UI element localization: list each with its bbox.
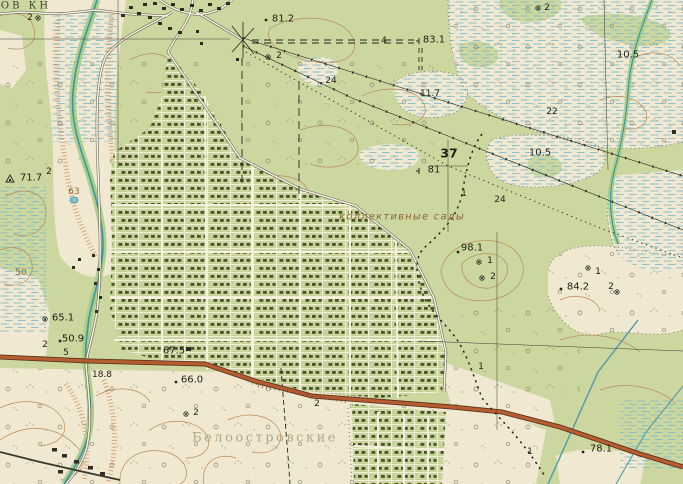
pond: [70, 197, 78, 203]
feature-number: 2: [276, 51, 282, 61]
winter-road-number: 4: [381, 36, 387, 46]
spot-height-84-2: 84.2: [567, 282, 589, 293]
spot-height-66-0: 66.0: [181, 375, 203, 386]
benchmark-83-1: 83.1: [423, 35, 445, 46]
feature-number: 1: [461, 189, 467, 199]
feature-number: 2: [46, 167, 52, 177]
feature-number: 1: [527, 447, 533, 457]
spot-height-78-1: 78.1: [590, 444, 612, 455]
line-label-22: 22: [546, 107, 557, 117]
line-label-24: 24: [325, 76, 336, 86]
topographic-map: ОВ КН 2 81.2 4 83.1 2 24 11.7 10.5 2 22 …: [0, 0, 683, 484]
feature-number: 2: [608, 282, 614, 292]
feature-number: 2: [193, 408, 199, 418]
marsh-depth-10-5b: 10.5: [529, 148, 551, 159]
spot-height-98-1: 98.1: [461, 243, 483, 254]
area-name-collective-gardens: коллективные сады: [339, 212, 465, 223]
spot-height-81-2: 81.2: [272, 14, 294, 25]
line-label-24b: 24: [494, 195, 505, 205]
marsh-depth-11-7: 11.7: [420, 89, 440, 99]
feature-number: 2: [314, 399, 320, 409]
feature-number: 1: [478, 362, 484, 372]
feature-number: 2: [42, 340, 48, 350]
bog-name-beloostrovskie: Белоостровские: [192, 431, 338, 446]
partial-place-name: ОВ КН: [1, 1, 51, 12]
spot-height-67-5: 67.5: [163, 346, 185, 357]
spot-height-18-8: 18.8: [92, 370, 112, 380]
quarter-post-37: 37: [440, 146, 457, 161]
triangulation-height-71-7: 71.7: [20, 173, 42, 184]
spot-height-65-1: 65.1: [52, 313, 74, 324]
feature-number: 2: [544, 3, 550, 13]
feature-number: 2: [490, 272, 496, 282]
contour-label-63: 63: [68, 187, 79, 197]
spot-height-50-9: 50.9: [62, 334, 84, 345]
feature-number: 1: [487, 256, 493, 266]
benchmark-81: 81: [428, 165, 441, 176]
feature-number: 2: [27, 13, 33, 23]
contour-label-50: 50: [15, 268, 26, 278]
map-graphics: [0, 0, 683, 484]
marsh-depth-10-5: 10.5: [617, 50, 639, 61]
feature-number: 1: [595, 267, 601, 277]
feature-number: 5: [63, 348, 69, 358]
